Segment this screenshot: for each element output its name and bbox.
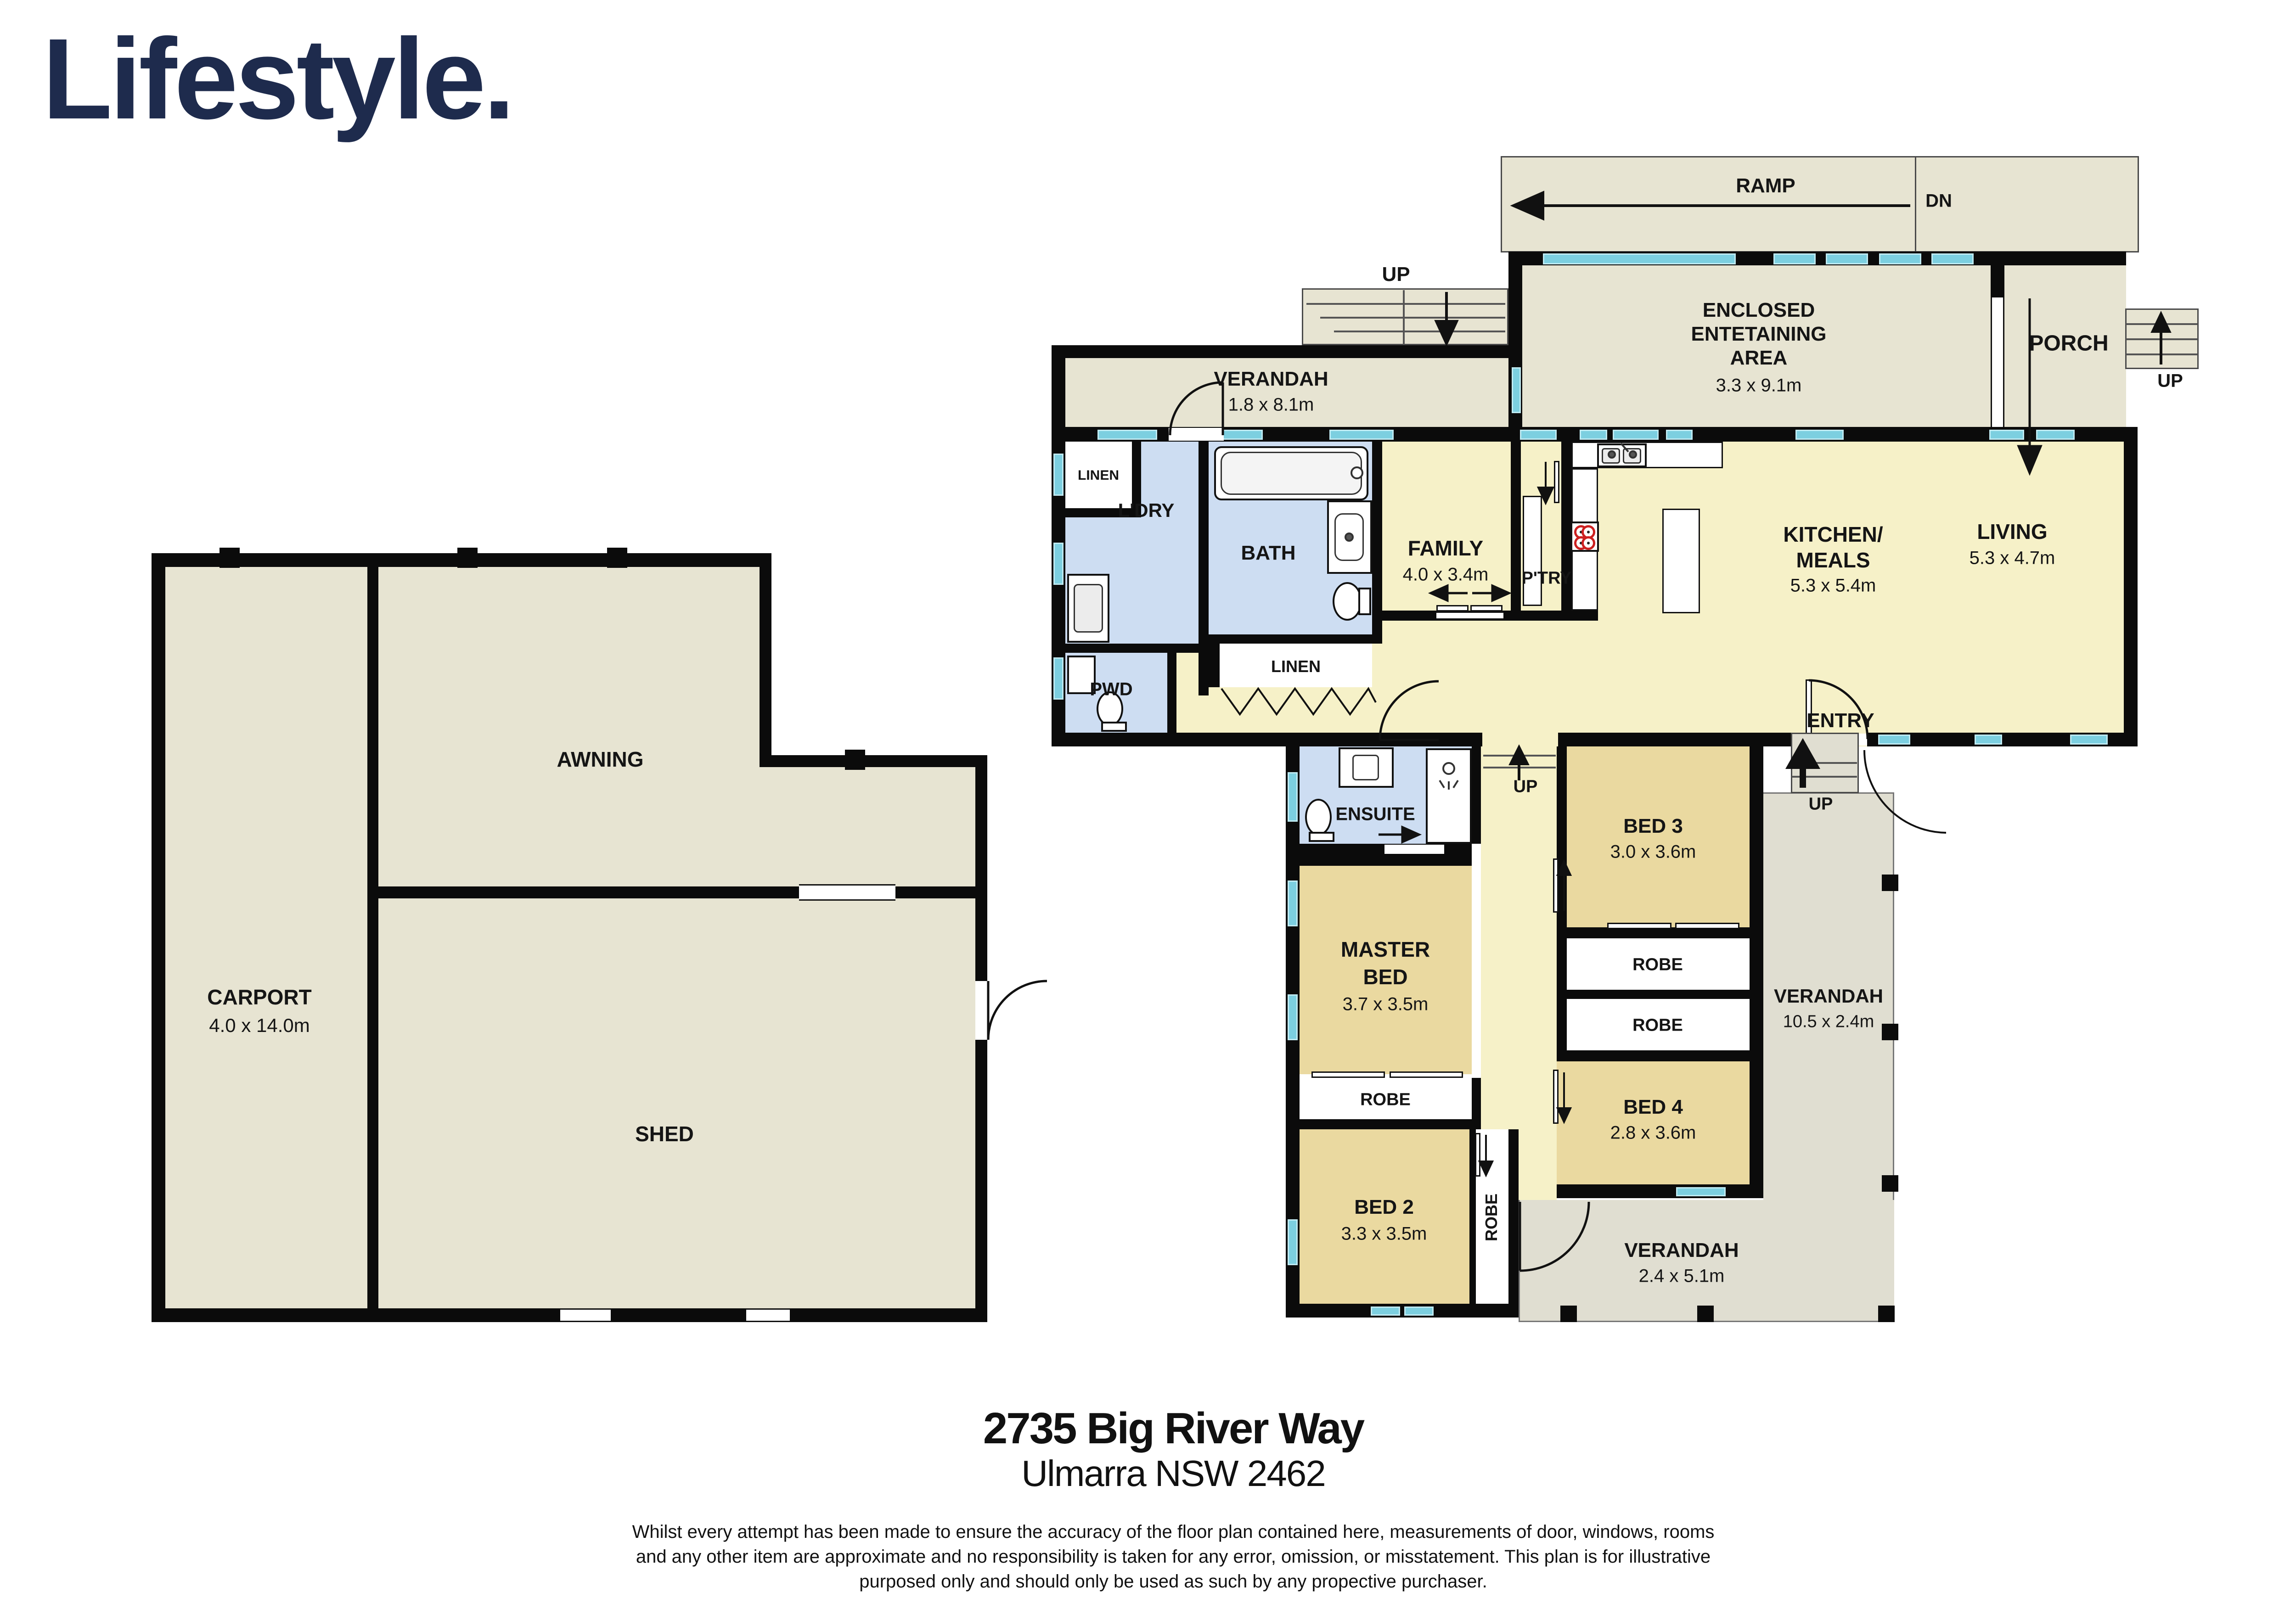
- post: [219, 548, 240, 568]
- label-bed2: BED 2: [1354, 1196, 1414, 1219]
- disclaimer: Whilst every attempt has been made to en…: [632, 1520, 1715, 1594]
- window: [2036, 430, 2075, 440]
- ramp-area: [1501, 156, 2139, 252]
- window: [1288, 880, 1298, 926]
- window: [1543, 253, 1736, 264]
- window: [1826, 253, 1868, 264]
- wall: [152, 553, 165, 1322]
- label-kitchen-1: KITCHEN/: [1783, 522, 1883, 547]
- wall: [1209, 644, 1220, 687]
- wall: [1209, 634, 1382, 644]
- label-linen-top: LINEN: [1078, 468, 1119, 483]
- post: [1882, 1175, 1898, 1192]
- label-verandah-top-dims: 1.8 x 8.1m: [1228, 395, 1314, 415]
- window: [1512, 367, 1521, 413]
- brand-logo: Lifestyle.: [42, 13, 512, 145]
- label-carport-dims: 4.0 x 14.0m: [209, 1015, 310, 1037]
- shower: [1426, 748, 1472, 844]
- window: [1097, 430, 1157, 440]
- label-awning: AWNING: [557, 747, 643, 772]
- bed4-door-leaf: [1553, 1070, 1559, 1124]
- stair-porch: [2125, 308, 2199, 369]
- ensuite-opening: [1384, 845, 1444, 854]
- label-living: LIVING: [1977, 519, 2047, 544]
- toilet: [1305, 799, 1332, 835]
- label-enclosed-1: ENCLOSED: [1703, 299, 1815, 322]
- wall: [760, 755, 987, 767]
- label-verandah-right: VERANDAH: [1774, 985, 1883, 1007]
- room-carport: [152, 553, 367, 1322]
- toilet-tank: [1309, 832, 1334, 842]
- window: [1329, 430, 1394, 440]
- window: [1676, 1187, 1726, 1196]
- stove-burner: [1581, 536, 1595, 550]
- label-porch: PORCH: [2029, 331, 2108, 356]
- window: [1371, 1306, 1400, 1316]
- ensuite-sink-bowl: [1352, 755, 1379, 780]
- wall: [1557, 938, 1567, 1061]
- window: [1404, 1306, 1434, 1316]
- wall: [1472, 746, 1481, 844]
- laundry-verandah-opening: [1169, 428, 1224, 441]
- label-master-2: BED: [1363, 964, 1407, 989]
- label-enclosed-3: AREA: [1730, 347, 1788, 370]
- address-line1: 2735 Big River Way: [983, 1403, 1363, 1454]
- label-pantry: P'TRY: [1522, 569, 1572, 589]
- shed-door-opening: [975, 981, 987, 1040]
- window: [1878, 735, 1910, 745]
- pantry-door-leaf: [1554, 461, 1559, 503]
- window: [1975, 735, 2002, 745]
- room-verandah-top: [1052, 345, 1508, 441]
- label-verandah-bottom-dims: 2.4 x 5.1m: [1639, 1266, 1725, 1287]
- wall: [1557, 1184, 1763, 1198]
- label-pwd: PWD: [1090, 679, 1132, 700]
- family-sliding-door: [1436, 611, 1503, 620]
- post: [1697, 1306, 1714, 1322]
- label-verandah-top: VERANDAH: [1214, 368, 1328, 391]
- shed-door-arc: [988, 981, 1047, 1040]
- window: [1053, 454, 1064, 496]
- label-master-dims: 3.7 x 3.5m: [1343, 994, 1429, 1015]
- label-verandah-right-dims: 10.5 x 2.4m: [1783, 1012, 1874, 1032]
- enclosed-door-opening: [1991, 297, 2004, 431]
- room-enclosed-entertaining: [1508, 252, 2004, 441]
- kitchen-sink-bowl: [1602, 448, 1620, 464]
- post: [1882, 1024, 1898, 1040]
- toilet-tank: [1358, 588, 1371, 615]
- window: [1288, 772, 1298, 822]
- shed-rear-opening: [746, 1308, 790, 1322]
- wall: [1132, 442, 1141, 508]
- wall-main-bottom: [1052, 733, 1482, 746]
- label-enclosed-2: ENTETAINING: [1691, 323, 1827, 346]
- label-bed4-dims: 2.8 x 3.6m: [1610, 1123, 1696, 1144]
- slider-panel: [1436, 605, 1469, 611]
- pantry-shelf: [1523, 496, 1542, 606]
- wall-carport-divider: [367, 553, 378, 1322]
- room-shed: [367, 897, 980, 1322]
- wall: [1167, 653, 1176, 733]
- label-up-verandah: UP: [1382, 263, 1410, 286]
- wall: [1372, 442, 1382, 644]
- label-robe-bed2: ROBE: [1482, 1194, 1501, 1241]
- kitchen-island: [1662, 509, 1700, 613]
- wall: [1567, 990, 1750, 999]
- floor-plan-page: Lifestyle. CARPORT 4.0 x 14.0m AWNING SH…: [0, 0, 2296, 1598]
- address-line2: Ulmarra NSW 2462: [1021, 1452, 1325, 1495]
- wall: [1286, 1304, 1519, 1318]
- wall: [1065, 644, 1209, 653]
- label-kitchen-dims: 5.3 x 5.4m: [1790, 576, 1876, 596]
- post: [1878, 1306, 1895, 1322]
- label-ramp: RAMP: [1736, 174, 1795, 197]
- ramp-divider: [1915, 156, 1916, 252]
- label-robe-master: ROBE: [1360, 1090, 1411, 1110]
- label-shed: SHED: [635, 1121, 694, 1146]
- wall: [760, 553, 771, 767]
- wall: [1750, 733, 1763, 1198]
- label-up-porch: UP: [2157, 371, 2183, 392]
- window: [1580, 430, 1607, 440]
- label-laundry: L'DRY: [1118, 499, 1175, 521]
- label-family-dims: 4.0 x 3.4m: [1403, 565, 1489, 585]
- shed-sliding-door: [799, 884, 895, 901]
- wall: [1508, 1129, 1519, 1304]
- slider-panel: [1470, 605, 1503, 611]
- wall-main-bottom: [1558, 733, 1808, 746]
- window: [1288, 1219, 1298, 1265]
- wall: [1300, 855, 1472, 866]
- label-robe-a: ROBE: [1632, 955, 1683, 975]
- label-ramp-dn: DN: [1925, 191, 1952, 212]
- wall-main-right: [2124, 427, 2138, 746]
- label-kitchen-2: MEALS: [1796, 548, 1870, 572]
- label-master-1: MASTER: [1341, 937, 1430, 962]
- disclaimer-line3: purposed only and should only be used as…: [632, 1569, 1715, 1594]
- window: [1666, 430, 1693, 440]
- label-carport: CARPORT: [207, 985, 311, 1009]
- window: [1288, 994, 1298, 1040]
- slider-panel: [1675, 923, 1739, 929]
- stair-entry: [1791, 733, 1859, 793]
- label-up-entry: UP: [1809, 795, 1833, 814]
- window: [2070, 735, 2108, 745]
- kitchen-sink-bowl: [1623, 448, 1641, 464]
- slider-panel: [1607, 923, 1671, 929]
- label-family: FAMILY: [1408, 536, 1483, 561]
- post: [845, 750, 865, 770]
- bath-vanity-sink: [1334, 513, 1364, 561]
- label-entry: ENTRY: [1806, 709, 1874, 732]
- window: [1773, 253, 1816, 264]
- window: [1613, 430, 1659, 440]
- disclaimer-line1: Whilst every attempt has been made to en…: [632, 1520, 1715, 1544]
- slider-panel: [1311, 1071, 1385, 1078]
- wall: [1300, 1119, 1481, 1129]
- label-bath: BATH: [1241, 542, 1296, 565]
- wall: [1511, 442, 1521, 611]
- post: [607, 548, 627, 568]
- slider-panel: [1390, 1071, 1463, 1078]
- label-enclosed-dims: 3.3 x 9.1m: [1716, 376, 1802, 396]
- label-bed2-dims: 3.3 x 3.5m: [1341, 1224, 1427, 1245]
- label-bed3: BED 3: [1623, 815, 1683, 838]
- toilet: [1333, 582, 1362, 621]
- window: [1053, 657, 1064, 700]
- shed-rear-opening: [560, 1308, 611, 1322]
- label-ensuite: ENSUITE: [1335, 804, 1415, 825]
- window: [1879, 253, 1921, 264]
- label-up-hall: UP: [1514, 777, 1538, 797]
- stair-verandah-top: [1302, 288, 1508, 345]
- post: [1882, 875, 1898, 891]
- label-verandah-bottom: VERANDAH: [1624, 1239, 1739, 1262]
- label-linen-mid: LINEN: [1271, 657, 1321, 676]
- label-robe-b: ROBE: [1632, 1016, 1683, 1036]
- bed2-door-leaf: [1475, 1133, 1480, 1177]
- window: [1053, 543, 1064, 585]
- bathtub-inner: [1221, 452, 1362, 495]
- label-bed4: BED 4: [1623, 1096, 1683, 1119]
- wall: [1052, 345, 1508, 358]
- room-awning: [367, 553, 771, 897]
- disclaimer-line2: and any other item are approximate and n…: [632, 1544, 1715, 1569]
- window: [1989, 430, 2024, 440]
- label-living-dims: 5.3 x 4.7m: [1970, 548, 2055, 569]
- wall: [1557, 1050, 1763, 1061]
- wall: [1199, 442, 1209, 695]
- window: [1931, 253, 1974, 264]
- toilet-tank: [1101, 722, 1127, 732]
- post: [1560, 1306, 1577, 1322]
- wall: [1472, 1078, 1481, 1119]
- window: [1520, 430, 1557, 440]
- post: [457, 548, 478, 568]
- bed3-door-leaf: [1553, 858, 1559, 913]
- room-awning-extension: [771, 755, 980, 897]
- kitchen-bench-top: [1571, 442, 1723, 468]
- label-bed3-dims: 3.0 x 3.6m: [1610, 842, 1696, 863]
- window: [1795, 430, 1844, 440]
- laundry-sink-bowl: [1074, 584, 1103, 633]
